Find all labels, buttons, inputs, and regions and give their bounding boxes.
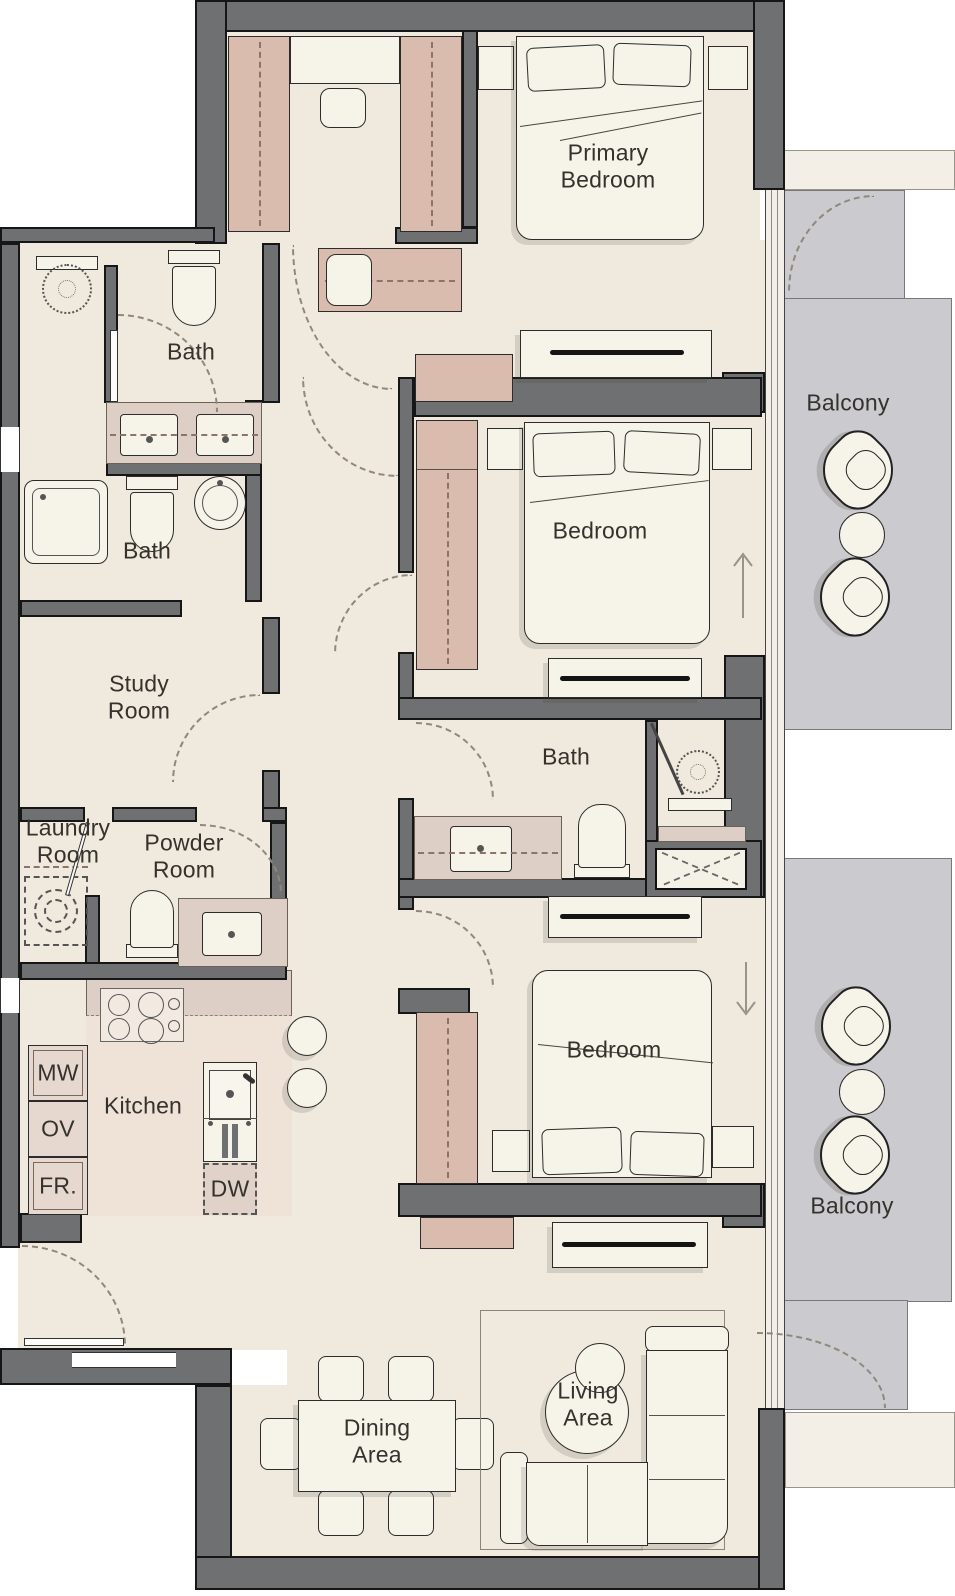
dining-chair <box>388 1356 434 1402</box>
room-label-powder-room: Powder Room <box>144 829 223 882</box>
cabinet-handle <box>222 1124 228 1158</box>
wall <box>462 30 478 228</box>
tv-icon <box>550 350 684 355</box>
window <box>0 427 20 472</box>
pillow <box>629 1131 704 1178</box>
drain <box>228 931 235 938</box>
towel-shelf <box>668 798 732 811</box>
sofa-armrest <box>645 1326 729 1352</box>
balcony-table <box>839 512 885 558</box>
balcony-table <box>839 1069 885 1115</box>
wardrobe-door-line <box>259 42 261 226</box>
room-label-laundry-room: Laundry Room <box>26 814 111 867</box>
wall <box>195 1556 785 1590</box>
wall <box>398 988 470 1014</box>
stool <box>320 88 366 128</box>
room-label-dining-area: Dining Area <box>344 1414 410 1467</box>
wall <box>0 470 20 980</box>
nightstand <box>708 46 748 90</box>
window <box>72 1352 176 1368</box>
shower-head-inner <box>58 280 76 298</box>
door-leaf <box>24 1338 124 1346</box>
low-cabinet <box>415 354 513 402</box>
faucet <box>217 480 223 486</box>
screw <box>208 1121 213 1126</box>
floor-dining-left <box>230 1385 290 1558</box>
drain <box>226 1090 234 1098</box>
bar-stool <box>287 1068 327 1108</box>
wardrobe <box>416 420 478 670</box>
burner <box>138 1018 164 1044</box>
wall <box>262 807 287 822</box>
room-label-living-area: Living Area <box>557 1377 618 1430</box>
dining-chair <box>318 1490 364 1536</box>
burner <box>168 998 180 1010</box>
shelf-line <box>417 469 477 470</box>
chair-cushion <box>837 571 889 623</box>
wardrobe <box>416 1012 478 1184</box>
wall <box>398 697 762 720</box>
room-label-bath-left: Bath <box>123 538 171 565</box>
wall <box>195 0 785 32</box>
sofa-armrest <box>500 1452 528 1544</box>
washer-drum-inner <box>44 899 68 923</box>
duct-shaft <box>655 848 747 890</box>
pillow <box>532 431 615 478</box>
wardrobe-door-line <box>447 473 449 664</box>
sofa-seat <box>526 1462 648 1546</box>
appliance-label-dishwasher: DW <box>211 1176 250 1203</box>
toilet-tank <box>168 250 220 264</box>
chair-cushion <box>837 1129 889 1181</box>
wall <box>262 243 280 403</box>
wall <box>0 227 215 243</box>
direction-arrow-down <box>733 958 759 1020</box>
wall <box>753 0 785 190</box>
window <box>0 978 20 1013</box>
wall <box>20 600 182 617</box>
nightstand <box>712 1126 754 1168</box>
balcony-slab-top <box>765 150 955 190</box>
sink-inner <box>202 485 238 521</box>
low-cabinet <box>420 1217 514 1249</box>
room-label-bedroom-lower: Bedroom <box>567 1037 662 1064</box>
wall <box>398 798 414 880</box>
room-label-study-room: Study Room <box>108 670 170 723</box>
counter-line <box>110 434 258 436</box>
bar-stool <box>287 1016 327 1056</box>
burner <box>108 1018 130 1040</box>
wall <box>758 1408 785 1590</box>
wall <box>0 243 20 429</box>
wardrobe-door-line <box>447 1018 449 1178</box>
duct-x-icon <box>657 850 745 888</box>
pillow <box>623 430 701 476</box>
shower-head-inner <box>690 764 706 780</box>
cushion-seam <box>587 1465 588 1543</box>
drain <box>222 436 229 443</box>
pillow <box>612 43 691 88</box>
toilet-tank <box>126 476 178 490</box>
counter-line <box>418 852 558 854</box>
room-label-balcony-upper: Balcony <box>806 390 889 417</box>
wall <box>398 1183 762 1217</box>
chair-cushion <box>838 1000 890 1052</box>
toilet-bowl <box>172 266 216 326</box>
burner <box>138 992 164 1018</box>
nightstand <box>487 428 523 470</box>
room-label-kitchen: Kitchen <box>104 1093 182 1120</box>
wall <box>398 896 414 910</box>
nightstand <box>492 1130 530 1172</box>
room-label-bath-middle: Bath <box>542 744 590 771</box>
direction-arrow-up <box>730 548 756 622</box>
balcony-slab-bottom <box>785 1412 955 1488</box>
toilet-bowl <box>578 804 626 868</box>
tv-icon <box>560 676 690 681</box>
wall <box>398 652 414 700</box>
room-label-bath-top-left: Bath <box>167 339 215 366</box>
pillow <box>526 44 606 92</box>
burner <box>108 994 130 1016</box>
wall <box>20 1213 82 1243</box>
wardrobe-door-line <box>431 42 433 226</box>
dining-chair <box>318 1356 364 1402</box>
toilet-bowl <box>130 890 174 948</box>
cushion-seam <box>649 1479 725 1480</box>
wall <box>112 807 197 822</box>
floor-plan: Primary Bedroom Bath Balcony Bedroom Bat… <box>0 0 955 1596</box>
dining-chair <box>388 1490 434 1536</box>
room-label-balcony-lower: Balcony <box>810 1193 893 1220</box>
washer-icon <box>24 876 88 946</box>
room-label-bedroom-middle: Bedroom <box>553 518 648 545</box>
burner <box>168 1020 180 1032</box>
appliance-label-microwave: MW <box>37 1060 78 1087</box>
cabinet-handle <box>232 1124 238 1158</box>
drain <box>146 436 153 443</box>
pillow <box>541 1127 623 1176</box>
dining-chair <box>260 1418 302 1470</box>
window-strip <box>765 188 785 1410</box>
glazing-line <box>777 188 778 1410</box>
sofa-seat <box>646 1350 728 1544</box>
drain <box>40 494 46 500</box>
drain <box>477 845 484 852</box>
room-label-primary-bedroom: Primary Bedroom <box>561 139 656 192</box>
appliance-label-fridge: FR. <box>39 1173 77 1200</box>
wardrobe <box>400 36 462 232</box>
wall <box>262 617 280 694</box>
wall <box>195 0 227 244</box>
wall <box>0 1011 20 1248</box>
screw <box>246 1121 251 1126</box>
nightstand <box>478 46 514 90</box>
cushion-seam <box>649 1415 725 1416</box>
cabinet-line <box>203 1118 257 1119</box>
nightstand <box>712 428 752 470</box>
wall <box>398 377 414 573</box>
shower-curb <box>658 826 746 842</box>
tv-icon <box>560 914 690 919</box>
dresser <box>290 36 400 84</box>
door-leaf <box>110 330 118 402</box>
wardrobe <box>228 36 290 232</box>
chair-cushion <box>840 444 892 496</box>
appliance-label-oven: OV <box>41 1116 75 1143</box>
tv-icon <box>562 1242 696 1247</box>
glazing-line <box>771 188 772 1410</box>
